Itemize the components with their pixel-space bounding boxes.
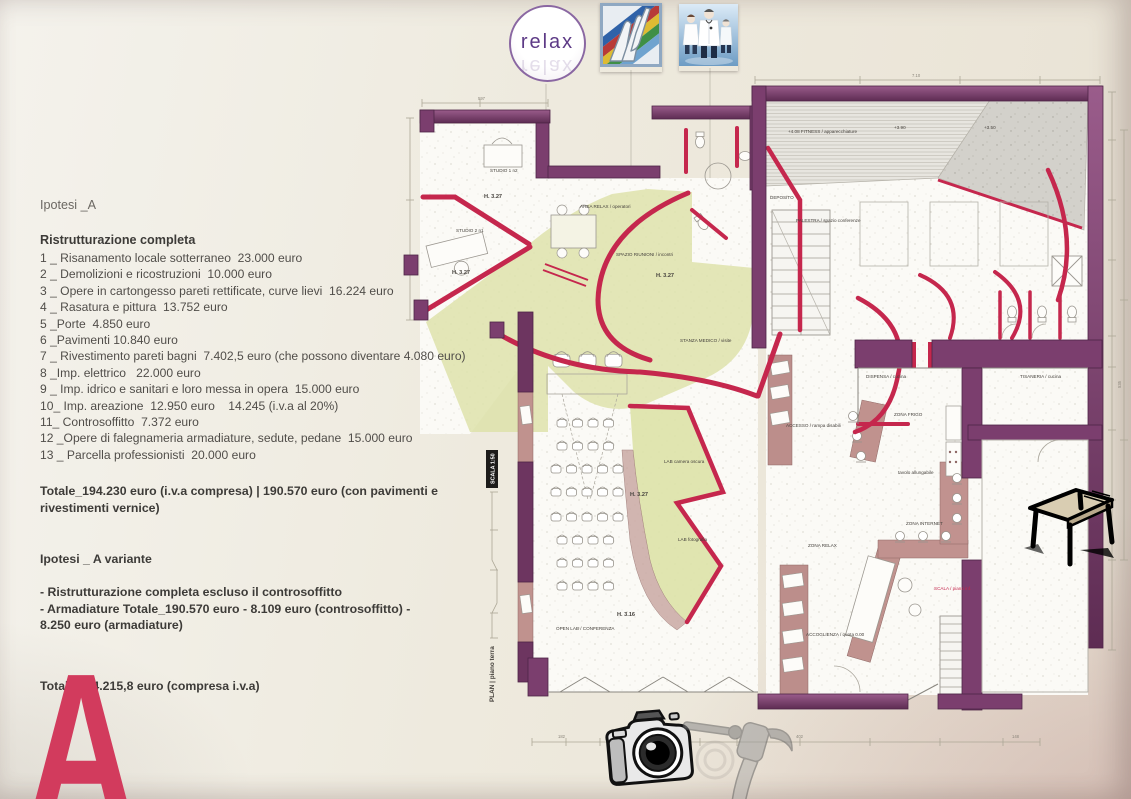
chair-glyph: [551, 487, 561, 496]
chair-glyph: [588, 535, 598, 544]
presentation-board: STUDIO 1 n2 H. 3.27 STUDIO 2 n1 H. 3.27 …: [0, 0, 1131, 799]
chair-glyph: [588, 558, 598, 567]
quota-label: +3.90: [894, 125, 906, 130]
chair-glyph: [573, 581, 583, 590]
height-label: H. 3.27: [630, 492, 648, 498]
dim-label: 7.10: [912, 73, 921, 78]
total-line: Totale_194.230 euro (i.v.a compresa) | 1…: [40, 483, 470, 516]
room-label-zona-internet: ZONA INTERNET: [906, 521, 943, 526]
room-label-zona-relax: ZONA RELAX: [808, 543, 837, 548]
chair-glyph: [573, 558, 583, 567]
chair-glyph: [557, 441, 567, 450]
chair-glyph: [604, 441, 614, 450]
room-label-area-relax: AREA RELAX / operatori: [580, 204, 631, 209]
chair-glyph: [613, 487, 623, 496]
room-label-scala: SCALA / piano inf.: [934, 586, 971, 591]
height-label: H. 3.16: [617, 612, 635, 618]
cost-item: 7 _ Rivestimento pareti bagni 7.402,5 eu…: [40, 348, 470, 364]
height-label: H. 3.27: [656, 273, 674, 279]
dim-label: 597: [478, 96, 486, 101]
cost-item: 4 _ Rasatura e pittura 13.752 euro: [40, 299, 470, 315]
cost-item: 6 _Pavimenti 10.840 euro: [40, 332, 470, 348]
chair-glyph: [551, 464, 561, 473]
doctors-image: [679, 4, 738, 71]
cost-item: 1 _ Risanamento locale sotterraneo 23.00…: [40, 250, 470, 266]
chair-glyph: [613, 464, 623, 473]
cost-item: 2 _ Demolizioni e ricostruzioni 10.000 e…: [40, 266, 470, 282]
chair-glyph: [557, 558, 567, 567]
chair-glyph: [604, 418, 614, 427]
room-label-fitness: +4.08 FITNESS / apparecchiature: [788, 129, 858, 134]
room-label-lab1: LAB camera oscura: [664, 459, 705, 464]
chair-glyph: [588, 418, 598, 427]
room-label-accoglienza: ACCOGLIENZA / quota 0.00: [806, 632, 865, 637]
chair-glyph: [613, 512, 623, 521]
variant-heading: Ipotesi _ A variante: [40, 551, 470, 568]
cost-item: 3 _ Opere in cartongesso pareti rettific…: [40, 283, 470, 299]
chair-glyph: [567, 464, 577, 473]
cost-item: 5 _Porte 4.850 euro: [40, 316, 470, 332]
chair-glyph: [551, 512, 561, 521]
dim-label: 535: [1117, 380, 1122, 388]
chair-glyph: [588, 441, 598, 450]
cost-item: 8 _Imp. elettrico 22.000 euro: [40, 365, 470, 381]
relax-logo-reflection: relax: [511, 54, 584, 77]
scale-badge: SCALA 1:50: [491, 453, 497, 484]
chair-glyph: [557, 418, 567, 427]
cost-item: 11_ Controsoffitto 7.372 euro: [40, 414, 470, 430]
room-label-stanza-medico: STANZA MEDICO / visite: [680, 338, 732, 343]
room-label-dispensa: DISPENSA / cucina: [866, 374, 907, 379]
scale-annotation: SCALA 1:50 PLAN | piano terra: [486, 450, 498, 702]
cost-item: 12 _Opere di falegnameria armadiature, s…: [40, 430, 470, 446]
renovation-heading: Ristrutturazione completa: [40, 233, 470, 247]
relax-logo-circle: relax relax: [509, 5, 586, 82]
hypothesis-title: Ipotesi _A: [40, 198, 470, 212]
room-label-spazio-riunioni: SPAZIO RIUNIONI / incontri: [616, 252, 673, 257]
room-label-lab2: LAB fotografia: [678, 537, 708, 542]
camera-clipart: [605, 708, 693, 785]
chair-glyph: [557, 535, 567, 544]
chair-glyph: [557, 581, 567, 590]
hammer-nail-clipart: [683, 719, 797, 799]
chair-glyph: [604, 535, 614, 544]
room-label-accesso: ACCESSO / rampa disabili: [786, 423, 841, 428]
chair-glyph: [604, 581, 614, 590]
room-label-palestra: PALESTRA / spazio conferenze: [796, 218, 861, 223]
chair-glyph: [604, 558, 614, 567]
room-label-tavolo: tavolo allungabile: [898, 470, 934, 475]
chair-glyph: [573, 418, 583, 427]
cost-item: 10_ Imp. areazione 12.950 euro 14.245 (i…: [40, 398, 470, 414]
quota-label: +3.50: [984, 125, 996, 130]
room-label-tisaneria: TISANERIA / cucina: [1020, 374, 1062, 379]
cost-items: 1 _ Risanamento locale sotterraneo 23.00…: [40, 250, 470, 463]
chair-glyph: [582, 464, 592, 473]
variant-letter: A: [26, 642, 136, 799]
dim-label: 148: [1012, 734, 1020, 739]
cost-item: 9 _ Imp. idrico e sanitari e loro messa …: [40, 381, 470, 397]
height-label: H. 3.27: [484, 194, 502, 200]
relax-logo: relax relax: [509, 5, 586, 82]
dim-label: 402: [796, 734, 804, 739]
chair-glyph: [573, 441, 583, 450]
room-label-deposito: DEPOSITO: [770, 195, 794, 200]
stained-glass-hands-image: [600, 3, 662, 72]
chair-glyph: [598, 512, 608, 521]
chair-glyph: [598, 464, 608, 473]
chair-glyph: [582, 487, 592, 496]
room-label-studio1: STUDIO 1 n2: [490, 168, 518, 173]
chair-glyph: [588, 581, 598, 590]
dim-label: 182: [558, 734, 566, 739]
stained-glass-hands-icon: [600, 3, 662, 67]
relax-logo-text: relax: [511, 31, 584, 54]
chair-glyph: [598, 487, 608, 496]
chair-glyph: [567, 487, 577, 496]
room-label-open-lab: OPEN LAB / CONFERENZA: [556, 626, 615, 631]
chair-glyph: [573, 535, 583, 544]
plan-caption: PLAN | piano terra: [489, 646, 496, 702]
chair-glyph: [567, 512, 577, 521]
variant-lines: - Ristrutturazione completa escluso il c…: [40, 584, 470, 634]
cost-item: 13 _ Parcella professionisti 20.000 euro: [40, 447, 470, 463]
chair-glyph: [582, 512, 592, 521]
cost-summary-panel: Ipotesi _A Ristrutturazione completa 1 _…: [40, 198, 470, 694]
doctors-icon: [679, 4, 738, 66]
room-label-zona-frigo: ZONA FRIGO: [894, 412, 923, 417]
